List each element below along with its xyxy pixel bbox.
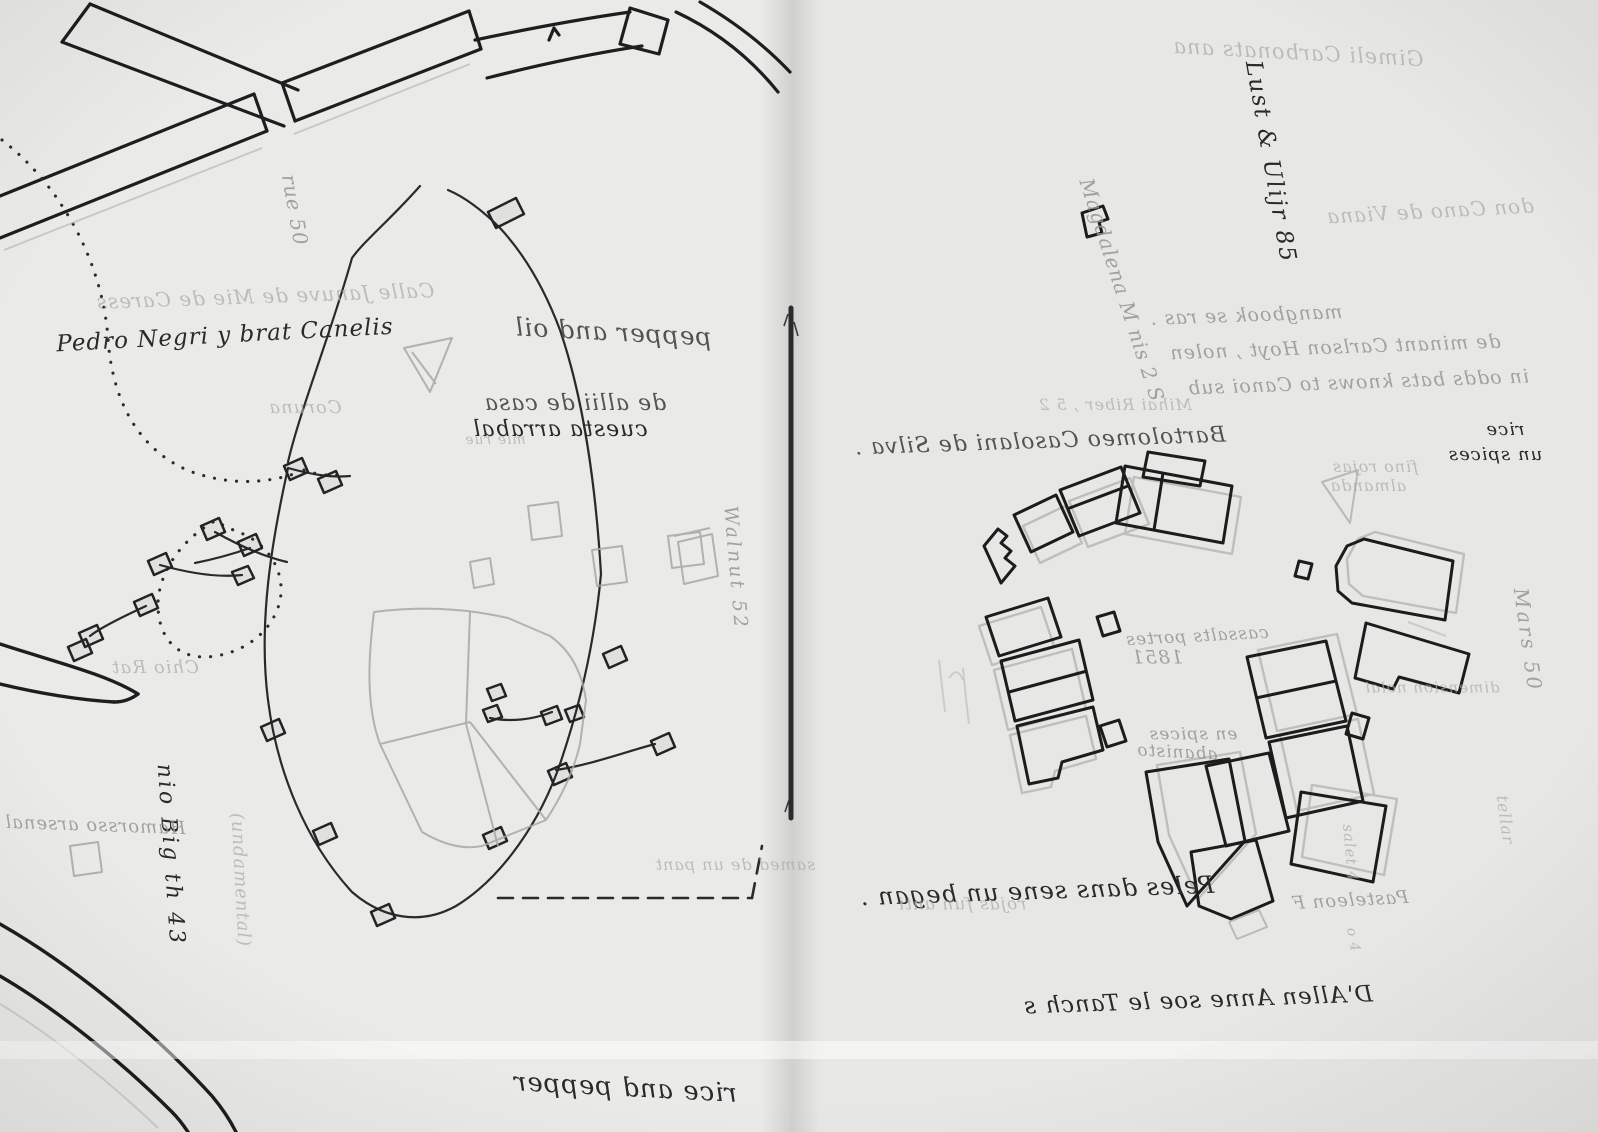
label-dimension: dimension nolai xyxy=(1364,681,1499,696)
label-salet-4: salet 4 xyxy=(1340,824,1360,883)
label-rice: rice xyxy=(1485,421,1524,439)
label-coruna: Coruna xyxy=(268,399,341,417)
label-un-spices: un spices xyxy=(1448,446,1542,464)
label-chio-rat: Chio Rat xyxy=(111,659,199,677)
label-allii-line1: de allii de casa xyxy=(484,393,666,415)
label-mihai: Mihai Riber , 5 2 xyxy=(1038,397,1192,413)
scan-artifacts xyxy=(0,0,1598,1132)
label-o-4: o 4 xyxy=(1344,927,1362,954)
label-mie-rue: mie rue xyxy=(464,433,525,447)
label-rojas-fun: rojas fun anti xyxy=(898,897,1027,914)
label-fino-rojas: fino rojas xyxy=(1332,459,1418,475)
label-year-1851: 1851 xyxy=(1131,649,1183,668)
tracing-paper-map-spread: Pedro Negri y brat Canelis Calle Januve … xyxy=(0,0,1598,1132)
label-samed: samed de un pant xyxy=(655,857,816,873)
label-abanisto: abanisto xyxy=(1136,742,1218,763)
label-almanda: almanda xyxy=(1330,478,1406,494)
map-drawing xyxy=(0,0,1598,1132)
vignette xyxy=(0,0,1598,1132)
